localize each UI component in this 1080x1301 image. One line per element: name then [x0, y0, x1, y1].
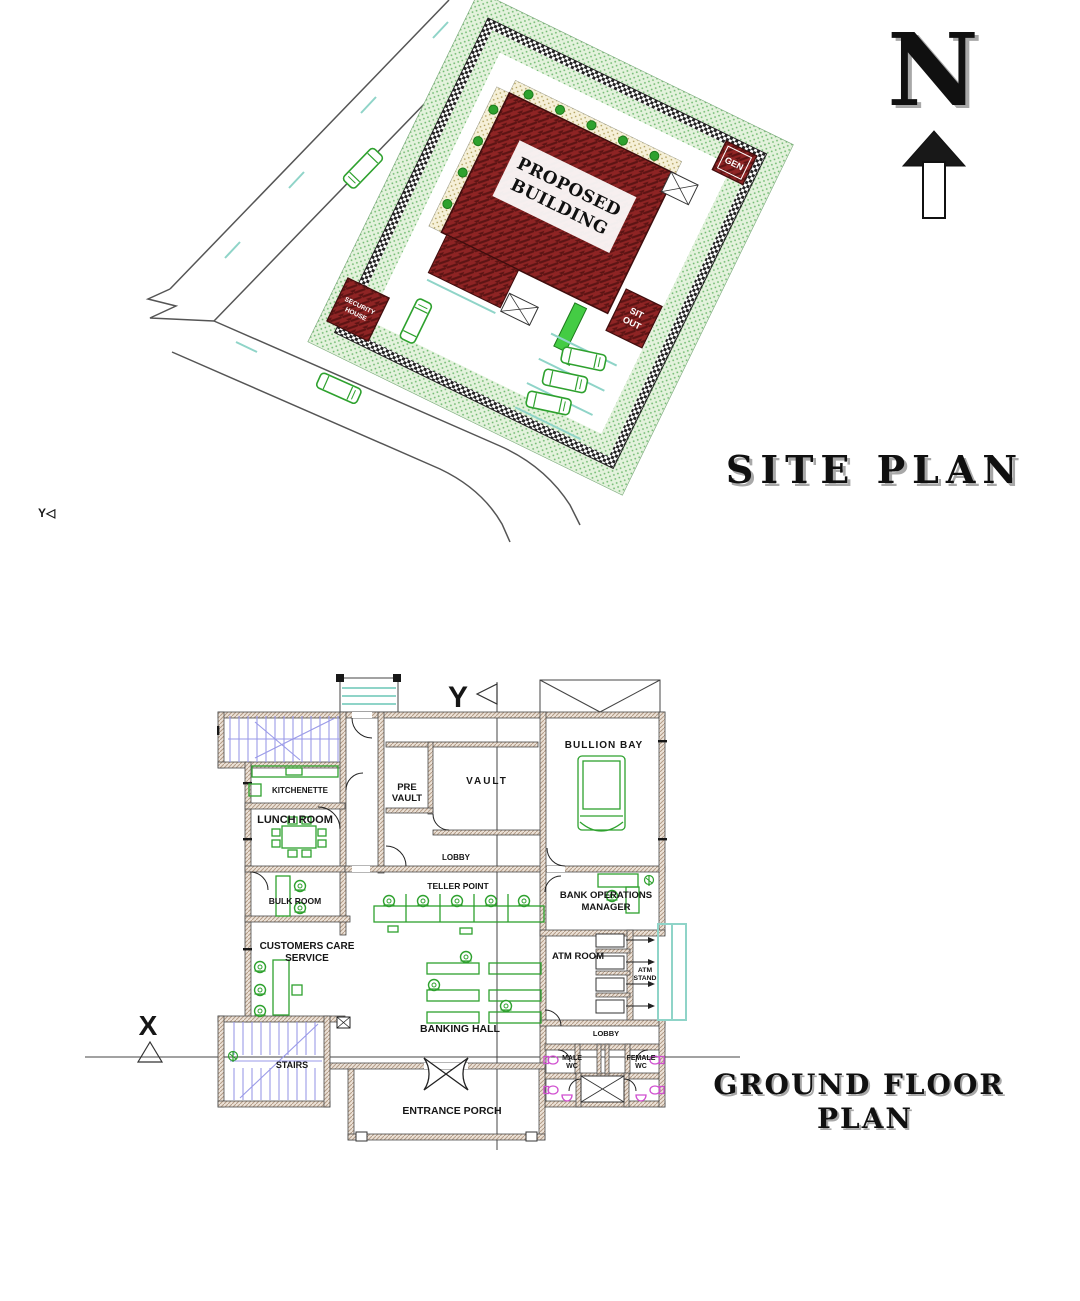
teller-stool-icon [519, 896, 530, 907]
north-arrow-head [903, 131, 965, 166]
chair-icon [255, 985, 266, 996]
label-female-wc-2: WC [635, 1063, 647, 1070]
ground-floor-plan: Y X [85, 674, 740, 1150]
label-pre-vault-1: PRE [397, 782, 417, 793]
stairs-top-block [228, 716, 340, 762]
teller-stool-icon [452, 896, 463, 907]
plant-icon [645, 876, 654, 887]
section-marker-x-left: X [138, 1010, 162, 1062]
site-plan: PROPOSED BUILDING [38, 0, 793, 542]
duct-shaft [581, 1076, 624, 1102]
x-marker-flag [138, 1042, 162, 1062]
label-atm-room: ATM ROOM [552, 951, 604, 962]
person-icon [461, 952, 472, 963]
label-bank-ops-1: BANK OPERATIONS [560, 890, 652, 901]
label-teller-point: TELLER POINT [427, 881, 489, 891]
label-bank-ops-2: MANAGER [581, 902, 630, 913]
site-compound: PROPOSED BUILDING [308, 0, 794, 495]
column [356, 1132, 367, 1141]
label-ccs-1: CUSTOMERS CARE [260, 941, 355, 952]
section-marker-y-left: Y◁ [38, 506, 56, 520]
entrance-porch-details [356, 1058, 537, 1141]
column [526, 1132, 537, 1141]
label-stairs: STAIRS [276, 1060, 308, 1070]
label-lobby-lower: LOBBY [593, 1029, 619, 1038]
label-male-wc-2: WC [566, 1063, 578, 1070]
floor-title-line2: PLAN [817, 1102, 913, 1135]
chair-icon [255, 962, 266, 973]
section-marker-y-top: Y [448, 681, 497, 714]
site-plan-title: SITE PLAN [726, 447, 1024, 492]
teller-stool-icon [384, 896, 395, 907]
label-bullion-bay: BULLION BAY [565, 740, 643, 751]
label-female-wc-1: FEMALE [627, 1055, 656, 1062]
north-letter: N [887, 11, 978, 129]
sink-icon [636, 1095, 646, 1101]
banking-hall-benches [427, 952, 541, 1024]
person-icon [501, 1001, 512, 1012]
road-break-symbol [148, 289, 214, 321]
floor-mounted-box [337, 1017, 350, 1028]
sink-icon [562, 1095, 572, 1101]
floor-title-line1: GROUND FLOOR [713, 1068, 1004, 1101]
chair-icon [255, 1006, 266, 1017]
label-atm-stand-2: STAND [634, 975, 657, 982]
label-kitchenette: KITCHENETTE [272, 786, 329, 795]
road-dash [236, 342, 257, 352]
north-arrow-shaft [923, 162, 945, 218]
x-marker-label: X [139, 1010, 158, 1041]
y-marker-flag [477, 684, 497, 704]
drawing-sheet: PROPOSED BUILDING [0, 0, 1080, 1301]
label-banking-hall: BANKING HALL [420, 1023, 500, 1035]
y-left-label: Y◁ [38, 506, 56, 520]
label-lunch-room: LUNCH ROOM [257, 814, 333, 826]
label-atm-stand-1: ATM [638, 967, 653, 974]
teller-stool-icon [418, 896, 429, 907]
north-arrow: N N [887, 11, 982, 218]
side-entry-steps [336, 674, 401, 712]
label-pre-vault-2: VAULT [392, 793, 422, 804]
car-icon [315, 372, 362, 405]
teller-stool-icon [486, 896, 497, 907]
label-vault: VAULT [466, 776, 508, 787]
label-bulk-room: BULK ROOM [269, 896, 321, 906]
bullion-canopy [540, 680, 660, 712]
car-icon [342, 147, 384, 190]
architectural-drawing: PROPOSED BUILDING [0, 0, 1080, 1301]
y-marker-label: Y [448, 681, 468, 714]
label-entrance-porch: ENTRANCE PORCH [402, 1105, 501, 1117]
bullion-truck-icon [578, 756, 625, 831]
person-icon [429, 980, 440, 991]
customers-care-desks [255, 960, 303, 1017]
teller-counter [374, 894, 544, 934]
label-male-wc-1: MALE [562, 1055, 582, 1062]
label-lobby-upper: LOBBY [442, 853, 471, 862]
label-ccs-2: SERVICE [285, 953, 329, 964]
chair-icon [295, 881, 306, 892]
